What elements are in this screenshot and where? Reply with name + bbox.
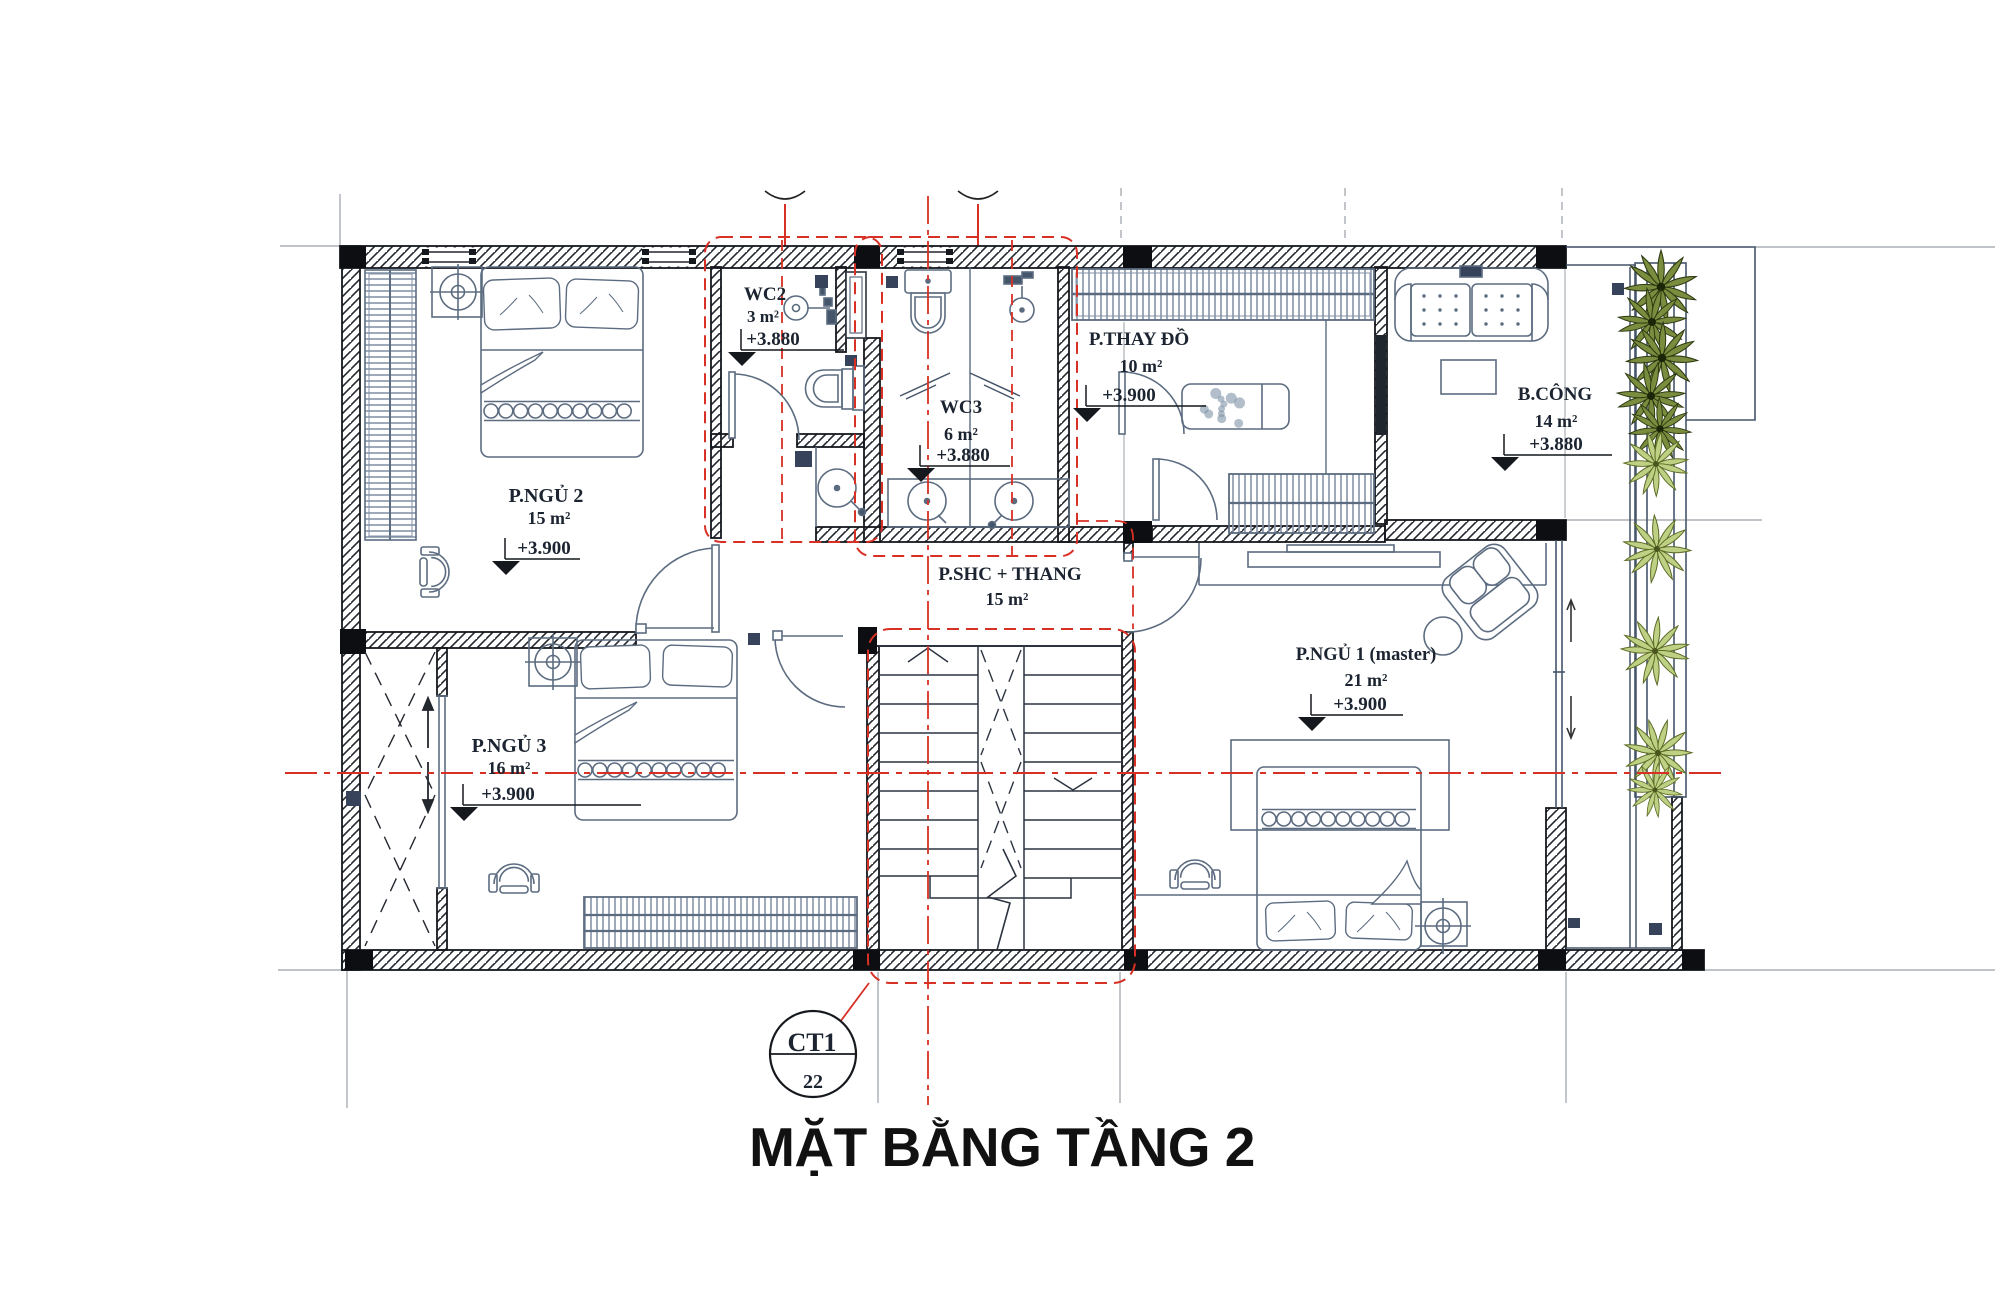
svg-text:14 m²: 14 m²	[1535, 411, 1578, 431]
svg-text:B.CÔNG: B.CÔNG	[1518, 383, 1593, 405]
svg-text:+3.880: +3.880	[936, 445, 990, 466]
svg-text:+3.900: +3.900	[1333, 694, 1387, 715]
svg-text:22: 22	[803, 1071, 823, 1093]
svg-text:10 m²: 10 m²	[1120, 356, 1163, 376]
svg-text:+3.880: +3.880	[1529, 434, 1583, 455]
svg-text:P.NGỦ 1 (master): P.NGỦ 1 (master)	[1296, 643, 1437, 665]
svg-text:+3.900: +3.900	[481, 784, 535, 805]
svg-text:CT1: CT1	[787, 1028, 836, 1057]
svg-text:+3.880: +3.880	[746, 329, 800, 350]
svg-text:+3.900: +3.900	[1102, 385, 1156, 406]
svg-text:3 m²: 3 m²	[747, 307, 779, 326]
svg-text:6 m²: 6 m²	[944, 424, 978, 444]
svg-text:P.NGỦ 2: P.NGỦ 2	[509, 484, 584, 507]
svg-text:P.THAY ĐỒ: P.THAY ĐỒ	[1089, 328, 1189, 350]
svg-text:P.SHC + THANG: P.SHC + THANG	[938, 564, 1082, 585]
svg-text:15 m²: 15 m²	[986, 589, 1029, 609]
svg-text:MẶT BẰNG TẦNG 2: MẶT BẰNG TẦNG 2	[749, 1116, 1255, 1178]
svg-text:21 m²: 21 m²	[1345, 670, 1388, 690]
svg-text:+3.900: +3.900	[517, 538, 571, 559]
svg-text:15 m²: 15 m²	[528, 508, 571, 528]
svg-text:16 m²: 16 m²	[488, 758, 531, 778]
svg-text:P.NGỦ 3: P.NGỦ 3	[472, 734, 547, 757]
svg-text:WC3: WC3	[940, 397, 982, 418]
svg-text:WC2: WC2	[744, 284, 786, 305]
